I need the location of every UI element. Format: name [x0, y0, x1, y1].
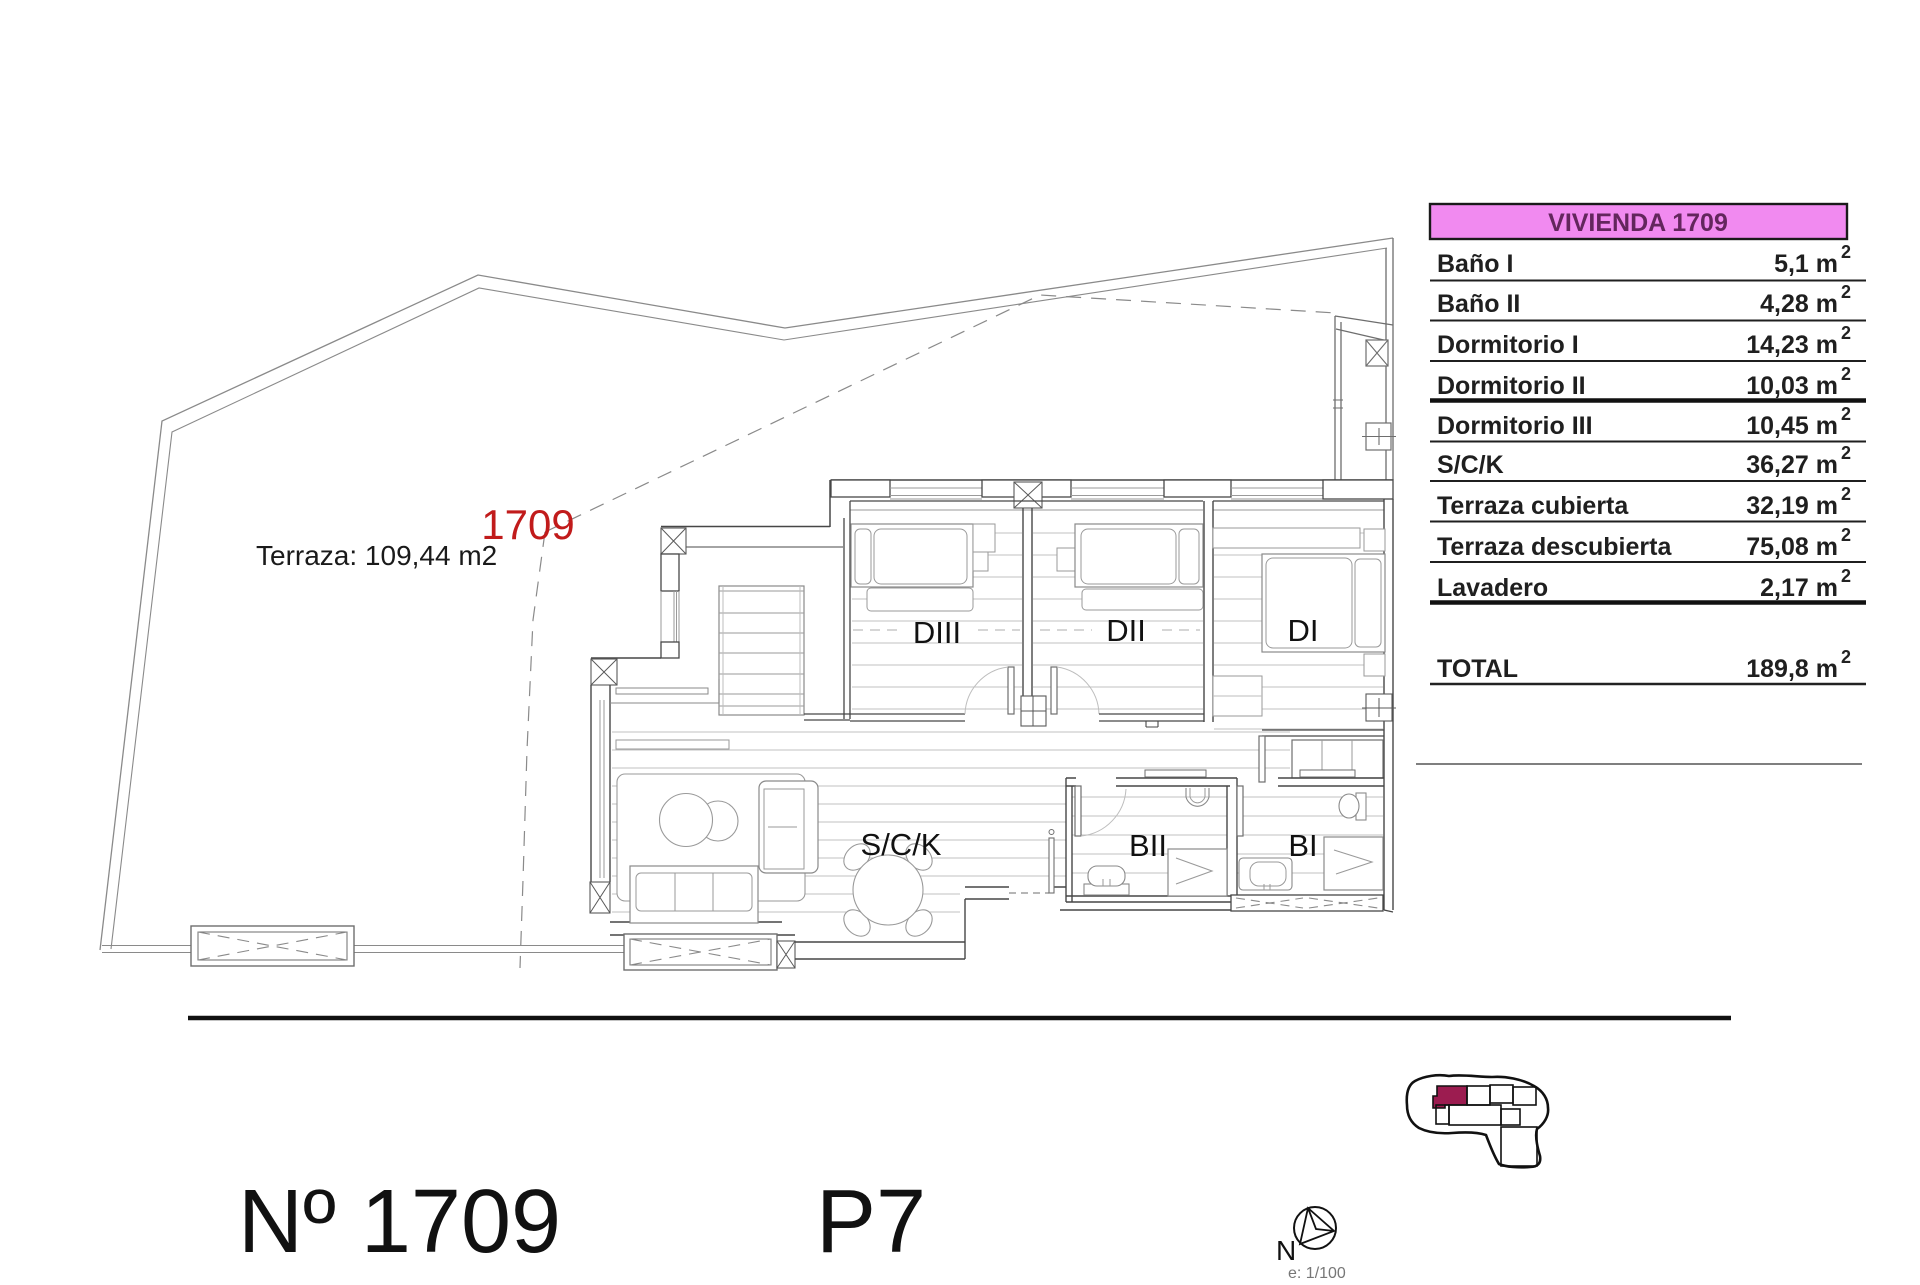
svg-text:TOTAL: TOTAL — [1437, 655, 1518, 683]
svg-text:Terraza cubierta: Terraza cubierta — [1437, 492, 1629, 520]
svg-text:2: 2 — [1841, 404, 1851, 424]
svg-text:32,19 m: 32,19 m — [1746, 492, 1838, 520]
svg-text:189,8 m: 189,8 m — [1746, 655, 1838, 683]
svg-text:N: N — [1276, 1235, 1296, 1266]
svg-text:P7: P7 — [816, 1172, 926, 1272]
svg-text:2: 2 — [1841, 525, 1851, 545]
svg-text:Terraza: 109,44 m2: Terraza: 109,44 m2 — [256, 540, 497, 571]
svg-text:DII: DII — [1106, 613, 1146, 648]
svg-text:10,45 m: 10,45 m — [1746, 412, 1838, 440]
svg-text:2: 2 — [1841, 484, 1851, 504]
svg-text:Dormitorio II: Dormitorio II — [1437, 372, 1586, 400]
svg-text:2: 2 — [1841, 364, 1851, 384]
svg-text:Terraza descubierta: Terraza descubierta — [1437, 533, 1672, 561]
svg-text:S/C/K: S/C/K — [1437, 451, 1504, 479]
svg-text:VIVIENDA 1709: VIVIENDA 1709 — [1548, 209, 1728, 237]
svg-text:Baño II: Baño II — [1437, 290, 1520, 318]
svg-text:BI: BI — [1288, 828, 1317, 863]
svg-text:Lavadero: Lavadero — [1437, 574, 1548, 602]
svg-text:2,17 m: 2,17 m — [1760, 574, 1838, 602]
svg-text:2: 2 — [1841, 647, 1851, 667]
svg-text:Dormitorio I: Dormitorio I — [1437, 331, 1579, 359]
svg-text:DIII: DIII — [913, 615, 961, 650]
svg-text:4,28 m: 4,28 m — [1760, 290, 1838, 318]
svg-text:2: 2 — [1841, 282, 1851, 302]
svg-text:75,08 m: 75,08 m — [1746, 533, 1838, 561]
svg-text:Baño I: Baño I — [1437, 250, 1513, 278]
svg-text:2: 2 — [1841, 566, 1851, 586]
svg-text:DI: DI — [1288, 613, 1319, 648]
svg-text:BII: BII — [1129, 828, 1167, 863]
svg-text:14,23 m: 14,23 m — [1746, 331, 1838, 359]
svg-text:2: 2 — [1841, 242, 1851, 262]
svg-text:2: 2 — [1841, 443, 1851, 463]
svg-text:e: 1/100: e: 1/100 — [1288, 1265, 1346, 1280]
svg-text:5,1 m: 5,1 m — [1774, 250, 1838, 278]
svg-text:Dormitorio III: Dormitorio III — [1437, 412, 1593, 440]
svg-text:Nº 1709: Nº 1709 — [238, 1172, 561, 1272]
svg-text:36,27 m: 36,27 m — [1746, 451, 1838, 479]
svg-text:S/C/K: S/C/K — [861, 827, 942, 862]
svg-text:2: 2 — [1841, 323, 1851, 343]
svg-text:10,03 m: 10,03 m — [1746, 372, 1838, 400]
